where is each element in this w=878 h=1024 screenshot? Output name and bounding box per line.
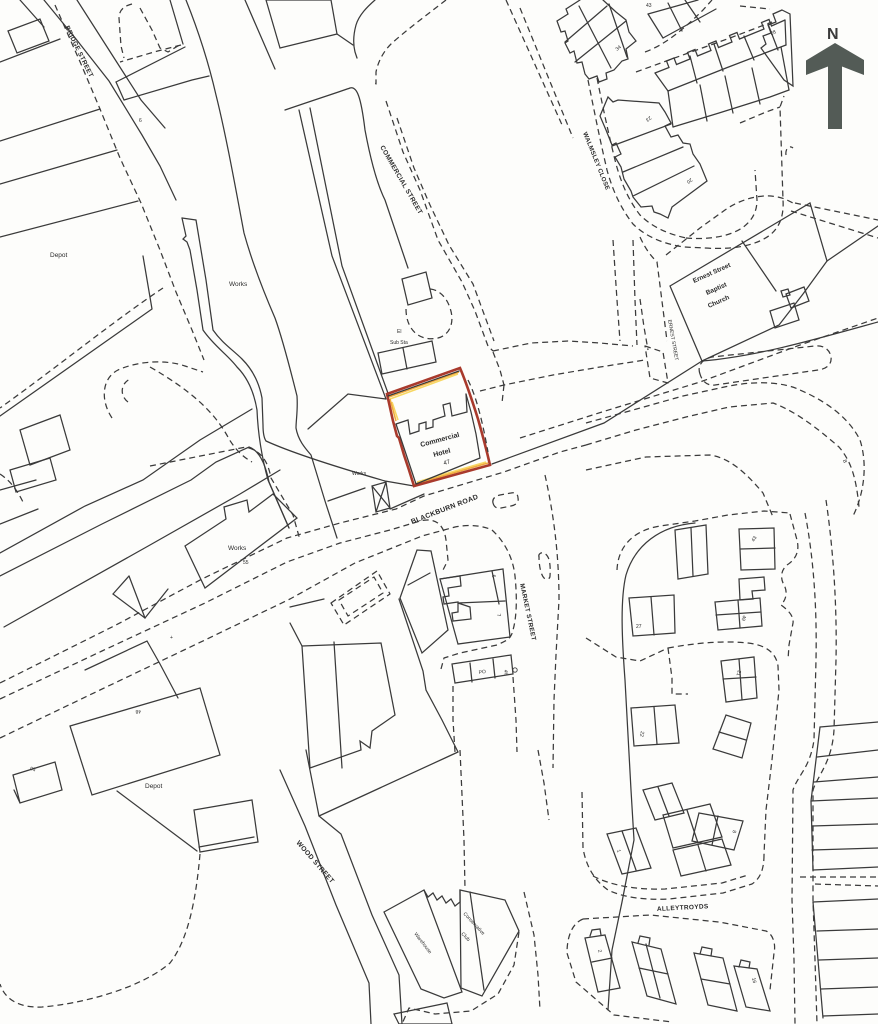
svg-text:55: 55	[243, 560, 249, 566]
svg-text:PO: PO	[478, 669, 486, 676]
svg-text:N: N	[827, 26, 839, 43]
svg-text:Works: Works	[228, 545, 247, 552]
svg-text:27: 27	[636, 624, 642, 630]
svg-text:Works: Works	[352, 471, 367, 477]
svg-text:Depot: Depot	[145, 783, 163, 790]
svg-text:Depot: Depot	[50, 252, 68, 259]
svg-text:+: +	[170, 635, 173, 641]
svg-text:48: 48	[135, 708, 141, 714]
svg-text:6: 6	[139, 118, 142, 124]
svg-text:Sub Sta: Sub Sta	[390, 340, 408, 346]
svg-text:Works: Works	[229, 281, 248, 288]
svg-text:El: El	[397, 329, 401, 335]
svg-text:43: 43	[646, 3, 652, 9]
